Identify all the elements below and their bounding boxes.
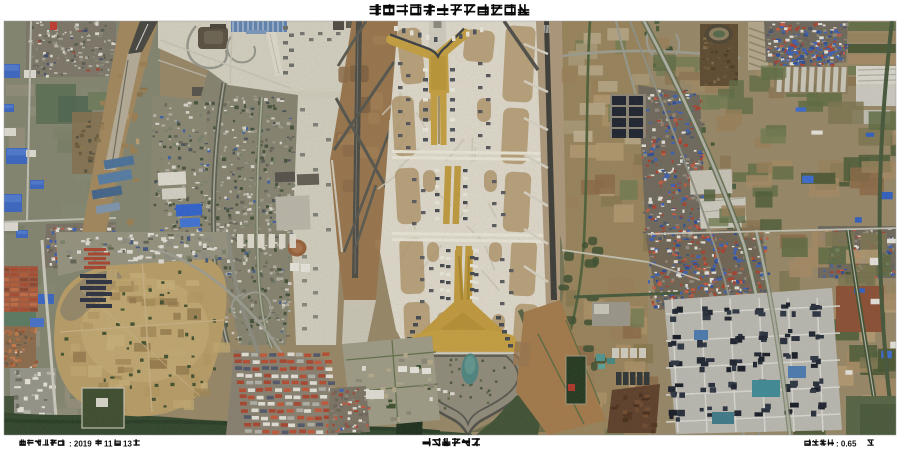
svg-text:: 0.65: : 0.65	[836, 440, 857, 449]
svg-text:: 2019: : 2019	[69, 440, 92, 449]
svg-text:13: 13	[123, 440, 132, 449]
svg-text:11: 11	[104, 440, 113, 449]
